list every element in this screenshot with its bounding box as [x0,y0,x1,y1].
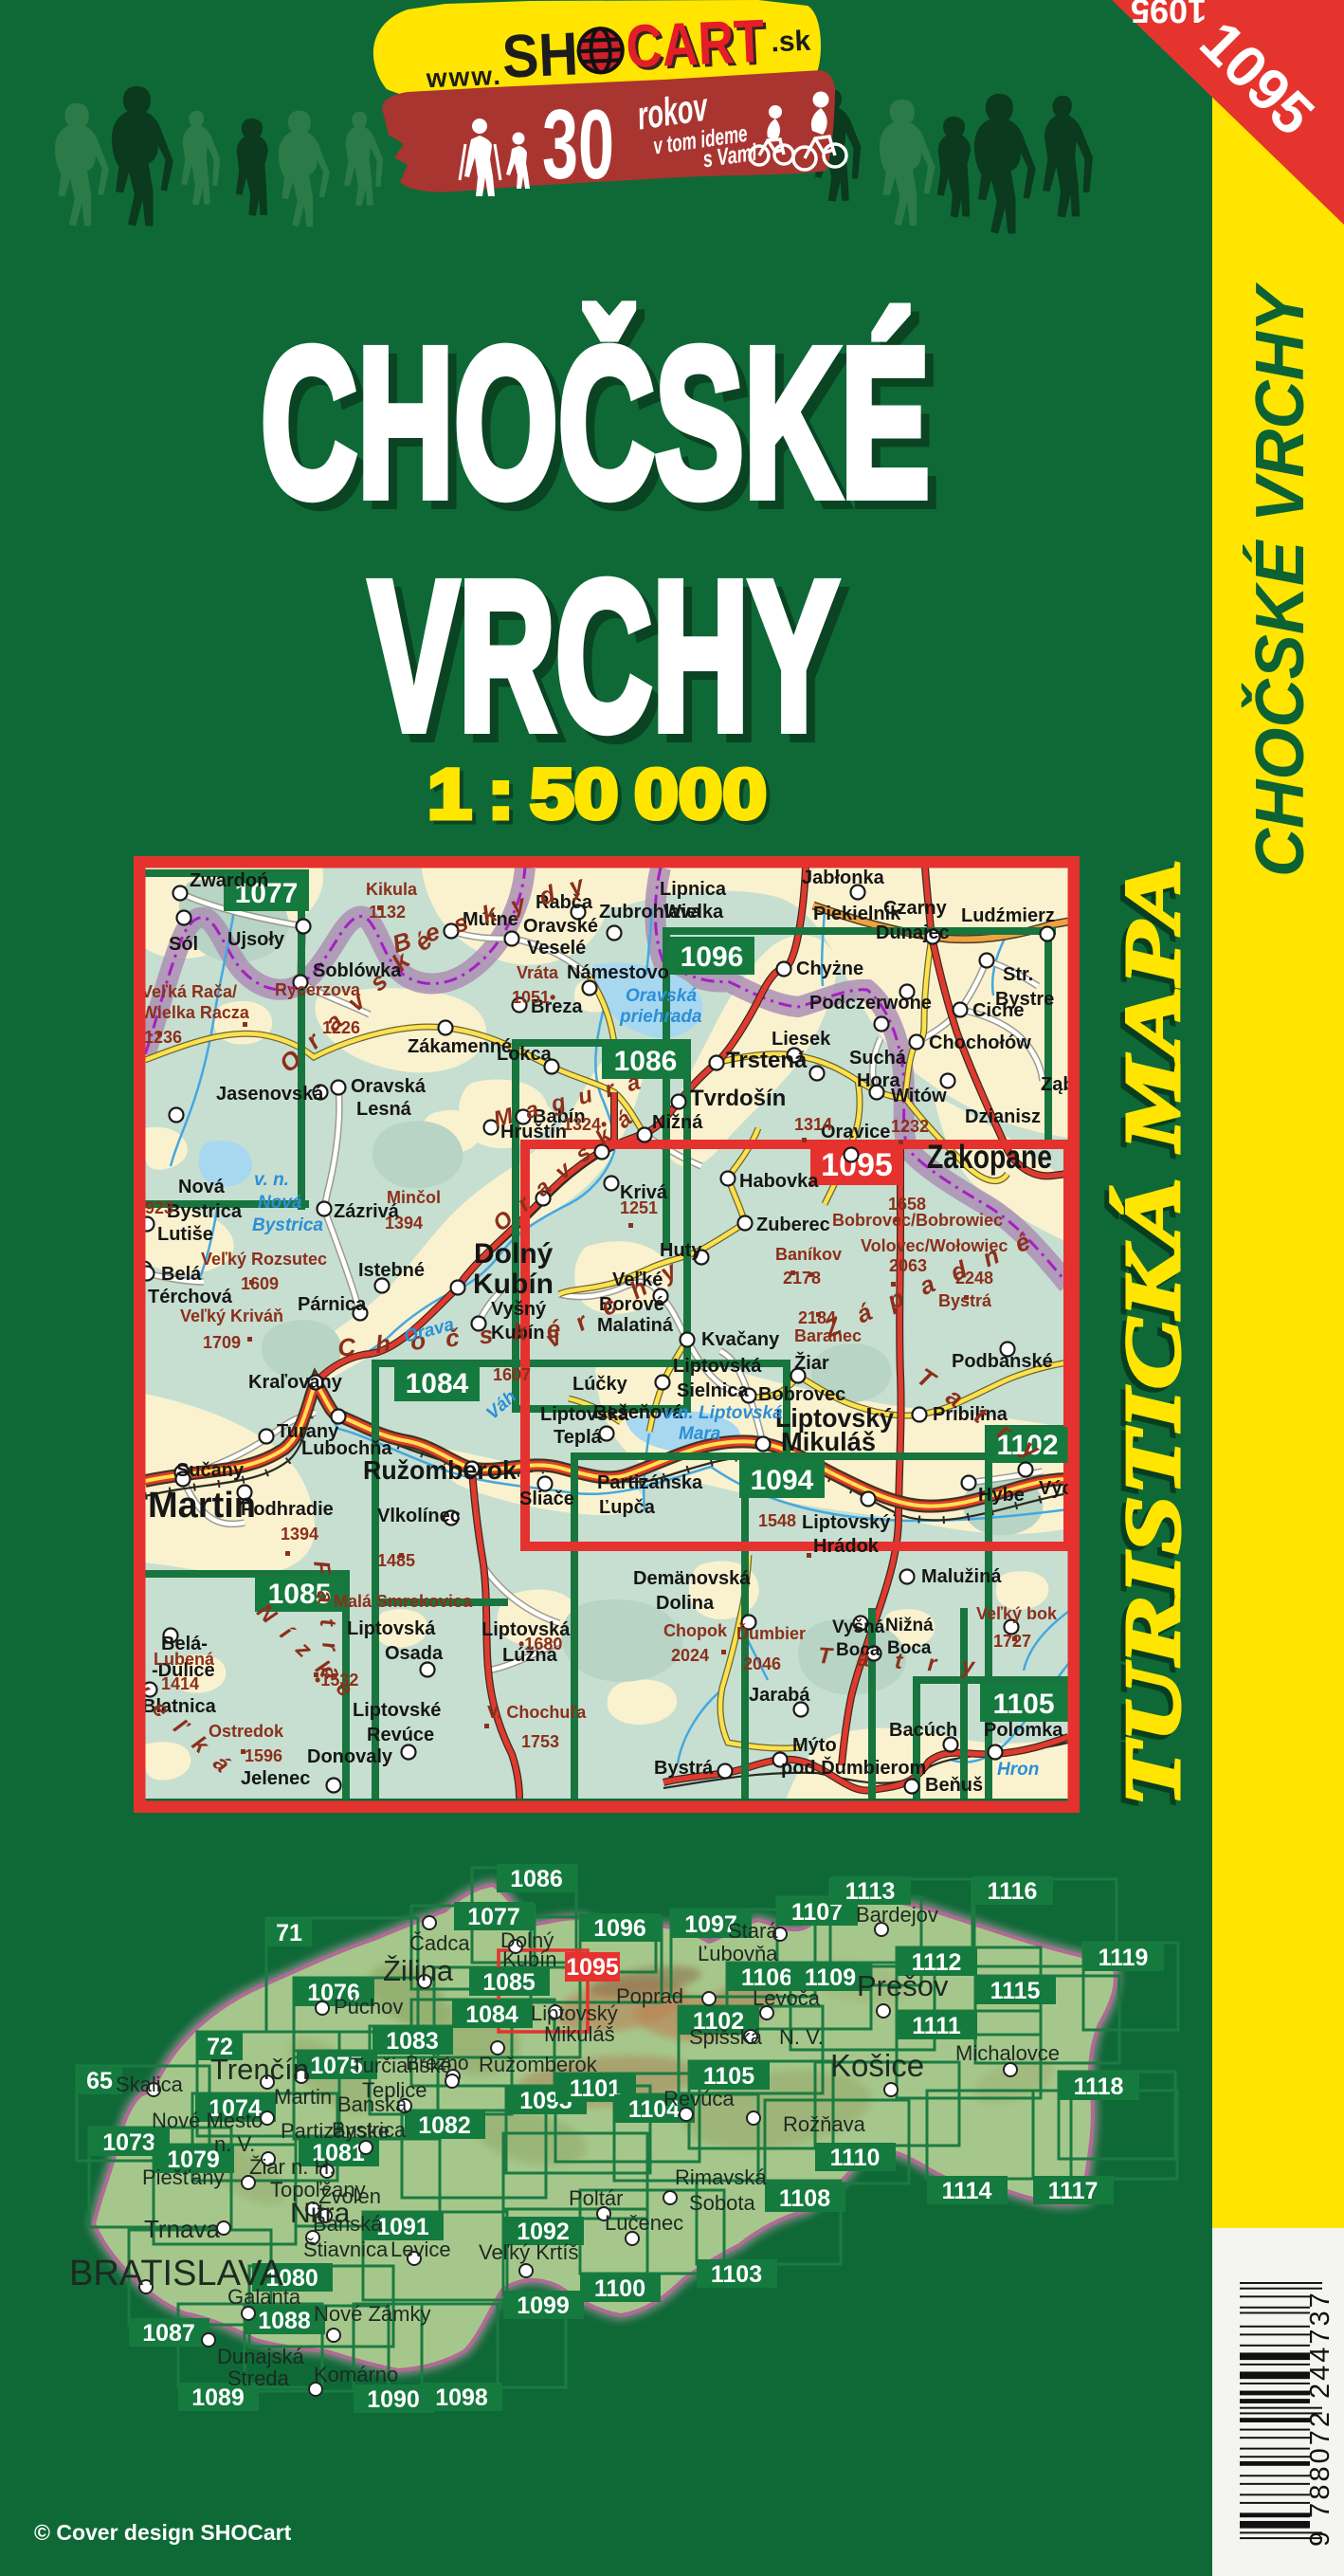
svg-text:Veselé: Veselé [527,938,586,959]
svg-text:Habovka: Habovka [739,1171,819,1192]
svg-text:Streda: Streda [227,2366,290,2390]
svg-text:Banská: Banská [313,2212,383,2236]
svg-text:1596: 1596 [245,1746,282,1765]
svg-text:Chyżne: Chyżne [796,959,863,979]
svg-text:Kubín: Kubín [473,1269,554,1300]
svg-text:Ľubovňa: Ľubovňa [698,1942,778,1965]
svg-text:Veľká Rača/: Veľká Rača/ [141,982,237,1001]
svg-text:Poprad: Poprad [616,1984,683,2008]
svg-text:1485: 1485 [377,1551,415,1570]
svg-text:Trnava: Trnava [144,2215,220,2243]
svg-text:1094: 1094 [751,1465,814,1496]
svg-text:30: 30 [542,90,614,200]
svg-text:1394: 1394 [385,1214,423,1233]
svg-text:Lučenec: Lučenec [605,2211,683,2235]
svg-text:65: 65 [86,2068,113,2094]
svg-text:1051•: 1051• [512,988,555,1007]
svg-text:Witów: Witów [891,1086,947,1106]
svg-text:1084: 1084 [406,1368,469,1399]
svg-text:1118: 1118 [1074,2074,1124,2100]
svg-text:Ďumbier: Ďumbier [736,1623,806,1643]
svg-text:1314: 1314 [794,1115,832,1134]
svg-text:Martin: Martin [148,1486,256,1526]
svg-text:Liptovská: Liptovská [540,1404,629,1425]
svg-text:Mikuláš: Mikuláš [781,1427,876,1456]
svg-text:Podbanské: Podbanské [952,1351,1053,1372]
svg-text:1087: 1087 [142,2320,195,2347]
svg-text:1103: 1103 [711,2261,762,2288]
svg-text:1114: 1114 [942,2178,992,2204]
svg-text:Bystrica: Bystrica [252,1215,323,1235]
svg-text:Veľký Rozsutec: Veľký Rozsutec [201,1250,327,1269]
svg-text:Liptovské: Liptovské [353,1700,441,1721]
svg-text:Galanta: Galanta [227,2285,301,2309]
svg-text:priehrada: priehrada [619,1007,702,1027]
svg-text:CART: CART [625,7,766,81]
svg-text:1607: 1607 [493,1365,531,1384]
svg-text:Púchov: Púchov [334,1995,403,2019]
svg-text:VRCHY: VRCHY [370,538,839,775]
svg-text:Nové Mesto: Nové Mesto [152,2109,263,2132]
svg-text:Podczerwone: Podczerwone [809,993,932,1014]
svg-text:Prešov: Prešov [857,1969,949,2002]
svg-text:Kraľovany: Kraľovany [248,1372,343,1393]
svg-text:Lesná: Lesná [356,1099,412,1120]
svg-text:Rimavská: Rimavská [675,2165,767,2189]
svg-text:Martin: Martin [274,2085,332,2109]
svg-text:1116: 1116 [988,1878,1038,1905]
svg-text:Mikuláš: Mikuláš [544,2022,615,2046]
svg-text:1108: 1108 [779,2185,830,2212]
svg-text:Párnica: Párnica [298,1294,367,1315]
svg-text:1414: 1414 [161,1674,199,1693]
svg-text:2178: 2178 [783,1269,821,1288]
svg-text:N. V.: N. V. [779,2025,824,2049]
svg-text:Kikula: Kikula [366,880,418,899]
svg-text:71: 71 [276,1920,302,1946]
svg-text:1394: 1394 [281,1525,318,1544]
svg-text:923: 923 [145,1198,173,1217]
svg-text:Spišská: Spišská [689,2025,763,2049]
svg-text:Vyšná: Vyšná [832,1617,885,1637]
svg-text:Komárno: Komárno [314,2363,398,2386]
svg-text:Partizánska: Partizánska [597,1472,703,1493]
svg-text:1084: 1084 [465,2001,518,2028]
svg-text:Baníkov: Baníkov [775,1245,842,1264]
svg-text:Ludźmierz: Ludźmierz [961,905,1055,926]
svg-text:2024: 2024 [671,1646,709,1665]
svg-text:Nižná: Nižná [652,1112,703,1133]
svg-text:Revúca: Revúca [663,2087,735,2110]
svg-text:Liptovská: Liptovská [673,1356,762,1377]
svg-text:Nižná: Nižná [885,1616,934,1635]
svg-text:1105: 1105 [992,1689,1054,1720]
svg-text:1113: 1113 [845,1878,896,1905]
svg-text:Tvrdošín: Tvrdošín [690,1086,786,1111]
svg-text:CHOČSKÉ: CHOČSKÉ [261,304,930,541]
svg-text:Nová: Nová [258,1193,302,1213]
svg-text:Vráta: Vráta [517,963,559,982]
svg-text:Kvačany: Kvačany [701,1329,780,1350]
svg-text:Bardejov: Bardejov [856,1903,938,1927]
svg-text:Lubená: Lubená [154,1650,215,1669]
svg-text:Žiar n. H.: Žiar n. H. [249,2155,335,2179]
svg-text:Beňuš: Beňuš [925,1775,983,1796]
svg-text:Bystrá: Bystrá [654,1758,714,1779]
svg-text:Ostredok: Ostredok [209,1722,284,1741]
svg-text:Oravská: Oravská [351,1076,427,1097]
svg-text:Demänovská: Demänovská [633,1568,751,1589]
svg-text:Wielka: Wielka [663,902,724,923]
svg-text:Bystrica: Bystrica [167,1201,243,1222]
svg-text:v. n.: v. n. [254,1170,289,1190]
svg-text:Levoča: Levoča [753,1986,821,2010]
svg-text:Ľupča: Ľupča [599,1497,656,1518]
svg-text:1101: 1101 [570,2075,621,2102]
svg-text:Mara: Mara [679,1424,721,1444]
svg-text:Liptovská: Liptovská [347,1618,436,1639]
svg-text:•1680: •1680 [518,1635,562,1653]
svg-text:Minčol: Minčol [387,1188,441,1207]
svg-text:9 788072 244737: 9 788072 244737 [1305,2290,1335,2547]
svg-text:2046: 2046 [743,1654,781,1673]
svg-text:1111: 1111 [912,2013,961,2039]
svg-text:Liesek: Liesek [772,1029,831,1050]
svg-text:Veľký Kriváň: Veľký Kriváň [180,1306,283,1325]
svg-text:Czarny: Czarny [883,898,948,919]
svg-text:Ružomberok: Ružomberok [363,1455,517,1485]
svg-text:Ciche: Ciche [972,1000,1024,1021]
svg-text:Ujsoły: Ujsoły [227,929,285,950]
svg-text:Sielnica: Sielnica [677,1380,749,1401]
svg-text:Brezno: Brezno [406,2053,469,2074]
svg-text:Dzianisz: Dzianisz [965,1106,1041,1127]
svg-text:Košice: Košice [830,2048,924,2083]
svg-text:Nová: Nová [178,1177,226,1197]
svg-text:Trstená: Trstená [726,1048,808,1073]
svg-text:Chochołów: Chochołów [929,1032,1031,1053]
svg-text:Nové Zámky: Nové Zámky [314,2302,430,2326]
svg-text:Bacúch: Bacúch [889,1720,957,1741]
svg-text:Žiar: Žiar [794,1351,829,1374]
svg-text:Zwardoń: Zwardoń [190,870,268,891]
svg-text:Bystrá: Bystrá [938,1291,992,1310]
svg-text:Str.: Str. [1003,964,1033,985]
svg-text:Žilina: Žilina [383,1954,454,1987]
svg-text:Oravské: Oravské [523,916,598,937]
svg-text:1085: 1085 [482,1969,536,1996]
svg-text:1117: 1117 [1048,2178,1099,2204]
svg-text:Hron: Hron [997,1760,1039,1780]
svg-text:Lipnica: Lipnica [660,879,727,900]
svg-text:Wielka Racza: Wielka Racza [141,1003,250,1022]
svg-text:TURISTICKÁ MAPA: TURISTICKÁ MAPA [1109,859,1197,1807]
svg-text:Térchová: Térchová [148,1287,233,1307]
svg-text:www.: www. [425,61,502,94]
svg-text:CHOČSKÉ VRCHY: CHOČSKÉ VRCHY [1242,282,1318,877]
svg-text:Ružomberok: Ružomberok [479,2053,598,2076]
svg-text:1100: 1100 [594,2275,645,2302]
svg-text:Malužiná: Malužiná [921,1566,1002,1587]
svg-text:Mýto: Mýto [792,1735,837,1756]
svg-text:Kubín: Kubín [502,1947,557,1971]
svg-text:Hybe: Hybe [978,1485,1025,1506]
svg-text:.sk: .sk [771,26,811,59]
svg-text:Lutiše: Lutiše [157,1224,213,1245]
svg-text:1236: 1236 [144,1028,182,1047]
svg-text:Stará: Stará [728,1919,778,1943]
svg-text:Poltár: Poltár [569,2186,623,2210]
svg-text:1753: 1753 [521,1732,559,1751]
svg-text:Dolný: Dolný [474,1238,554,1270]
svg-text:1110: 1110 [830,2145,881,2171]
svg-text:v.n. Liptovská: v.n. Liptovská [663,1403,783,1423]
svg-text:1082: 1082 [418,2112,471,2139]
svg-text:Lúčky: Lúčky [572,1374,628,1395]
svg-text:Zuberec: Zuberec [756,1215,830,1235]
svg-text:V. Chochuľa: V. Chochuľa [487,1703,587,1722]
svg-text:Chopok: Chopok [663,1621,728,1640]
svg-text:Osada: Osada [385,1643,444,1664]
svg-text:Sučany: Sučany [176,1460,245,1481]
svg-text:Rožňava: Rožňava [783,2112,866,2136]
svg-text:Bystrica: Bystrica [332,2118,407,2142]
svg-text:1115: 1115 [990,1978,1041,2004]
svg-text:Piešťany: Piešťany [142,2165,225,2189]
svg-text:1095: 1095 [566,1954,619,1981]
svg-text:Istebné: Istebné [358,1260,425,1281]
svg-text:Veľký bok: Veľký bok [976,1604,1058,1623]
svg-text:Oravská: Oravská [626,986,697,1006]
svg-text:Sliače: Sliače [519,1489,574,1509]
svg-text:Zakopane: Zakopane [927,1139,1052,1176]
svg-text:1232: 1232 [891,1117,929,1136]
svg-text:Belá: Belá [161,1264,202,1285]
svg-text:SH: SH [500,19,579,90]
svg-text:1083: 1083 [386,2028,439,2055]
svg-text:Dolina: Dolina [656,1593,715,1614]
svg-text:Vlkolínec: Vlkolínec [377,1506,461,1526]
svg-text:Donovaly: Donovaly [307,1746,393,1767]
svg-text:1096: 1096 [681,941,744,973]
svg-text:Malá Smrekovica: Malá Smrekovica [334,1592,473,1611]
svg-text:Sól: Sól [169,934,198,955]
svg-text:Námestovo: Námestovo [567,962,669,983]
svg-text:Lokca: Lokca [497,1044,553,1065]
svg-text:1251: 1251 [620,1198,658,1217]
svg-text:Hrádok: Hrádok [813,1536,880,1557]
svg-text:Čadca: Čadca [409,1931,470,1955]
svg-text:pod Ďumbierom: pod Ďumbierom [781,1756,926,1779]
svg-text:1119: 1119 [1099,1945,1149,1971]
svg-text:Polomka: Polomka [984,1720,1063,1741]
svg-text:Skalica: Skalica [116,2073,184,2096]
svg-text:1099: 1099 [517,2293,570,2319]
svg-text:Bobrovec/Bobrowiec: Bobrovec/Bobrowiec [832,1211,1003,1230]
svg-text:Levice: Levice [390,2238,451,2261]
svg-text:1105: 1105 [703,2063,754,2090]
svg-text:1132: 1132 [369,903,406,922]
svg-text:Štiavnica: Štiavnica [303,2238,389,2261]
svg-text:1 : 50 000: 1 : 50 000 [427,755,767,833]
svg-text:1073: 1073 [102,2129,155,2156]
svg-text:1098: 1098 [435,2384,488,2411]
svg-text:Trenčín: Trenčín [210,2053,309,2086]
svg-text:Michalovce: Michalovce [955,2041,1060,2065]
svg-text:1088: 1088 [258,2308,311,2334]
svg-text:Bobrovec: Bobrovec [758,1384,845,1405]
svg-text:Sobota: Sobota [689,2191,755,2215]
svg-text:1609: 1609 [241,1274,279,1293]
svg-text:Suchá: Suchá [849,1048,907,1069]
svg-text:Teplá: Teplá [554,1427,603,1448]
svg-text:Banská: Banská [337,2092,408,2116]
svg-text:1096: 1096 [593,1915,646,1942]
svg-text:Veľký Krtíš: Veľký Krtíš [479,2240,578,2264]
svg-text:Jarabá: Jarabá [749,1685,810,1706]
svg-text:Zvolen: Zvolen [318,2184,381,2208]
svg-text:Jelenec: Jelenec [241,1768,310,1789]
svg-text:Revúce: Revúce [367,1725,434,1745]
svg-text:1090: 1090 [367,2386,420,2413]
svg-text:1548: 1548 [758,1511,796,1530]
svg-text:Dunajec: Dunajec [876,923,950,943]
svg-text:Liptovský: Liptovský [802,1512,891,1533]
svg-text:Dunajská: Dunajská [217,2345,304,2368]
svg-text:1086: 1086 [510,1866,563,1892]
svg-text:1709: 1709 [203,1333,241,1352]
svg-text:Jasenovská: Jasenovská [216,1084,324,1105]
svg-text:1091: 1091 [376,2214,429,2240]
svg-text:n. V.: n. V. [214,2132,255,2156]
svg-text:Jabłonka: Jabłonka [802,868,885,888]
svg-text:1077: 1077 [467,1904,520,1930]
